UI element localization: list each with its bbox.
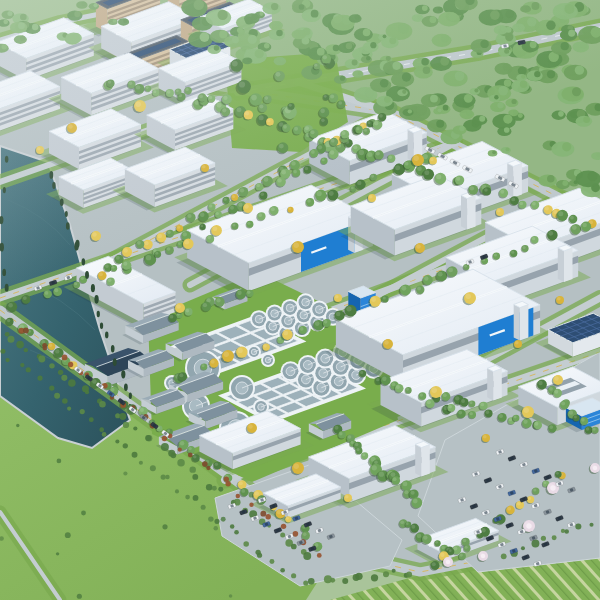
haze-overlay <box>0 0 600 600</box>
rendering-canvas <box>0 0 600 600</box>
atmosphere-haze-layer <box>0 0 600 600</box>
aerial-rendering-industrial-park <box>0 0 600 600</box>
